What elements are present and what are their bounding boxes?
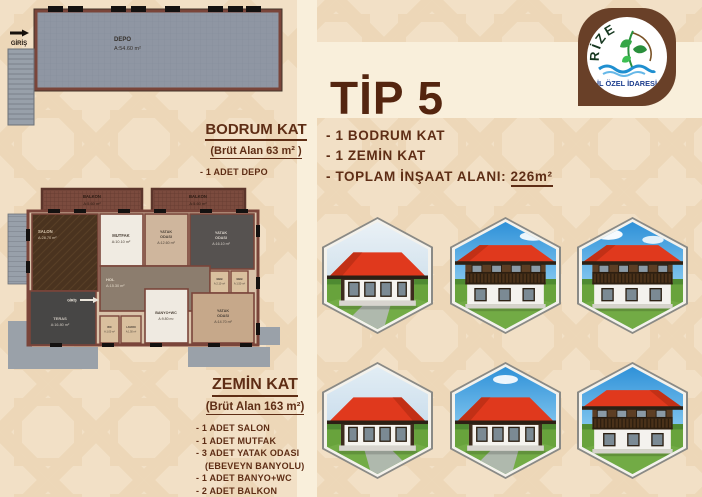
house-render-6 [577,362,688,479]
tea-leaf-icon [620,31,651,67]
total-area-value: 226m² [511,169,553,187]
svg-text:A:10.10 m²: A:10.10 m² [112,240,131,244]
svg-text:A:16.80 m²: A:16.80 m² [51,323,70,327]
room-yatak-3: YATAK ODASI A:14.70 m² [192,293,254,343]
zemin-kat-block: ZEMİN KAT (Brüt Alan 163 m²) - 1 ADET SA… [196,376,314,497]
svg-text:A:28.70 m²: A:28.70 m² [38,236,57,240]
room-teras: TERAS A:16.80 m² GİRİŞ [30,291,99,345]
svg-text:SALON: SALON [38,229,53,234]
basement-entrance: GİRİŞ [10,30,29,48]
zemin-heading: ZEMİN KAT [212,376,298,397]
wave-icon [599,66,655,76]
basement-floor-plan: GİRİŞ DEPO A:54.60 m² [2,3,300,131]
svg-text:A:16.10 m²: A:16.10 m² [212,242,230,246]
svg-text:A:1.00 m²: A:1.00 m² [104,331,115,334]
basement-stairs [8,49,34,125]
bodrum-heading: BODRUM KAT [205,121,306,141]
room-mutfak: MUTFAK A:10.10 m² [100,214,143,266]
page-title: TİP 5 [330,71,444,125]
svg-text:LAVABO: LAVABO [126,326,136,329]
svg-text:YATAK: YATAK [217,309,229,313]
rize-il-ozel-idaresi-logo: RİZE İL ÖZEL İDARESİ [578,8,680,110]
logo-org-text: İL ÖZEL İDARESİ [597,79,657,88]
exterior-path-right [188,347,270,367]
room-lavabo: LAVABO A:1.50 m² [121,316,141,343]
plan-room-label: DEPO [114,37,131,43]
list-item: - 3 ADET YATAK ODASI [196,447,314,460]
svg-text:A:12.60 m²: A:12.60 m² [157,241,175,245]
plan-room-area: A:54.60 m² [114,46,141,52]
svg-text:YATAK: YATAK [215,231,227,235]
list-item: - 1 BODRUM KAT [326,126,553,146]
presentation-board: GİRİŞ DEPO A:54.60 m² BODRUM KAT (Brüt A… [0,0,702,497]
list-item: (EBEVEYN BANYOLU) [196,460,314,473]
svg-text:A:14.70 m²: A:14.70 m² [214,320,232,324]
svg-text:EBB: EBB [236,277,242,281]
svg-text:ODASI: ODASI [215,236,227,240]
zemin-items: - 1 ADET SALON - 1 ADET MUTFAK - 3 ADET … [196,422,314,497]
list-item: - TOPLAM İNŞAAT ALANI: 226m² [326,167,553,187]
plan-room-label: BALKON [83,194,101,199]
svg-text:EBB: EBB [216,277,222,281]
svg-text:A:15.30 m²: A:15.30 m² [106,284,125,288]
svg-text:A:9.80 m²: A:9.80 m² [158,317,174,321]
room-salon: SALON A:28.70 m² [32,214,98,291]
svg-text:MUTFAK: MUTFAK [112,233,129,238]
list-item: - 1 ZEMİN KAT [326,146,553,166]
house-render-5 [450,362,561,479]
room-banyo-wc: BANYO+WC A:9.80 m² [145,289,188,343]
svg-text:A:1.50 m²: A:1.50 m² [234,282,245,286]
room-yatak-1: YATAK ODASI A:12.60 m² [145,214,188,266]
house-render-2 [450,217,561,334]
svg-text:HOL: HOL [106,277,115,282]
svg-text:A:2.10 m²: A:2.10 m² [214,282,225,286]
logo-circle: RİZE İL ÖZEL İDARESİ [587,17,667,97]
svg-text:TERAS: TERAS [53,316,67,321]
exterior-stairs [8,214,28,284]
plan-room-label: BALKON [189,194,207,199]
room-ebb-1: EBB A:2.10 m² [210,271,229,293]
house-render-1 [322,217,433,334]
bodrum-kat-block: BODRUM KAT (Brüt Alan 63 m² ) - 1 ADET D… [200,121,312,179]
room-yatak-2: YATAK ODASI A:16.10 m² [190,214,254,269]
svg-text:A:1.50 m²: A:1.50 m² [126,331,137,334]
svg-text:ODASI: ODASI [217,314,229,318]
svg-text:ODASI: ODASI [160,235,172,239]
list-item: - 1 ADET SALON [196,422,314,435]
svg-text:BANYO+WC: BANYO+WC [155,311,177,315]
bodrum-items: - 1 ADET DEPO [200,166,312,179]
zemin-gross-area: (Brüt Alan 163 m²) [206,401,305,415]
house-render-4 [322,362,433,479]
room-wc: WC A:1.00 m² [100,316,119,343]
list-item: - 1 ADET BANYO+WC [196,472,314,485]
plan-room-area: A:5.60 m² [83,201,101,206]
house-render-3 [577,217,688,334]
plan-room-area: A:5.60 m² [189,201,207,206]
list-item: - 1 ADET DEPO [200,166,312,179]
list-item: - 2 ADET BALKON [196,485,314,497]
ground-floor-plan: BALKON A:5.60 m² BALKON A:5.60 m² SALON … [2,181,300,373]
bodrum-gross-area: (Brüt Alan 63 m² ) [210,145,301,159]
entrance-label: GİRİŞ [11,40,27,47]
room-ebb-2: EBB A:1.50 m² [231,271,248,293]
summary-list: - 1 BODRUM KAT - 1 ZEMİN KAT - TOPLAM İN… [326,126,553,187]
svg-text:YATAK: YATAK [160,230,172,234]
entrance-label: GİRİŞ [67,299,77,303]
list-item: - 1 ADET MUTFAK [196,435,314,448]
